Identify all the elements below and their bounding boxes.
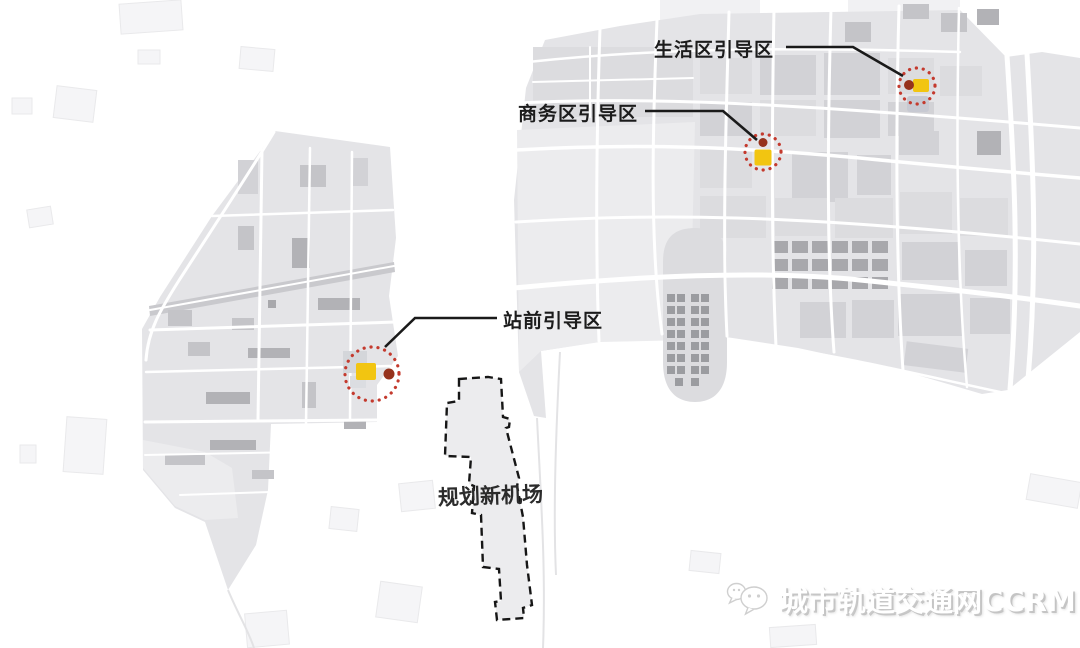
watermark-text: 城市轨道交通网CCRM xyxy=(779,578,1076,620)
station-front-dot xyxy=(384,369,395,380)
wechat-icon xyxy=(724,579,772,619)
capsule-district xyxy=(663,228,727,402)
station-front-leader xyxy=(385,318,497,347)
business-area-square xyxy=(755,150,772,166)
business-area-dot xyxy=(759,138,768,147)
business-area-label: 商务区引导区 xyxy=(518,99,638,126)
living-area-label: 生活区引导区 xyxy=(654,35,774,62)
living-area-dot xyxy=(904,80,914,90)
watermark: 城市轨道交通网CCRM xyxy=(724,578,1076,620)
station-front-label: 站前引导区 xyxy=(503,306,603,333)
station-front-square xyxy=(356,363,376,380)
planning-map: 生活区引导区 商务区引导区 站前引导区 规划新机场 城市轨道交通网CCRM xyxy=(0,0,1080,648)
airport-label: 规划新机场 xyxy=(438,478,544,512)
right-urban-area xyxy=(514,4,1080,418)
living-area-square xyxy=(913,79,929,92)
